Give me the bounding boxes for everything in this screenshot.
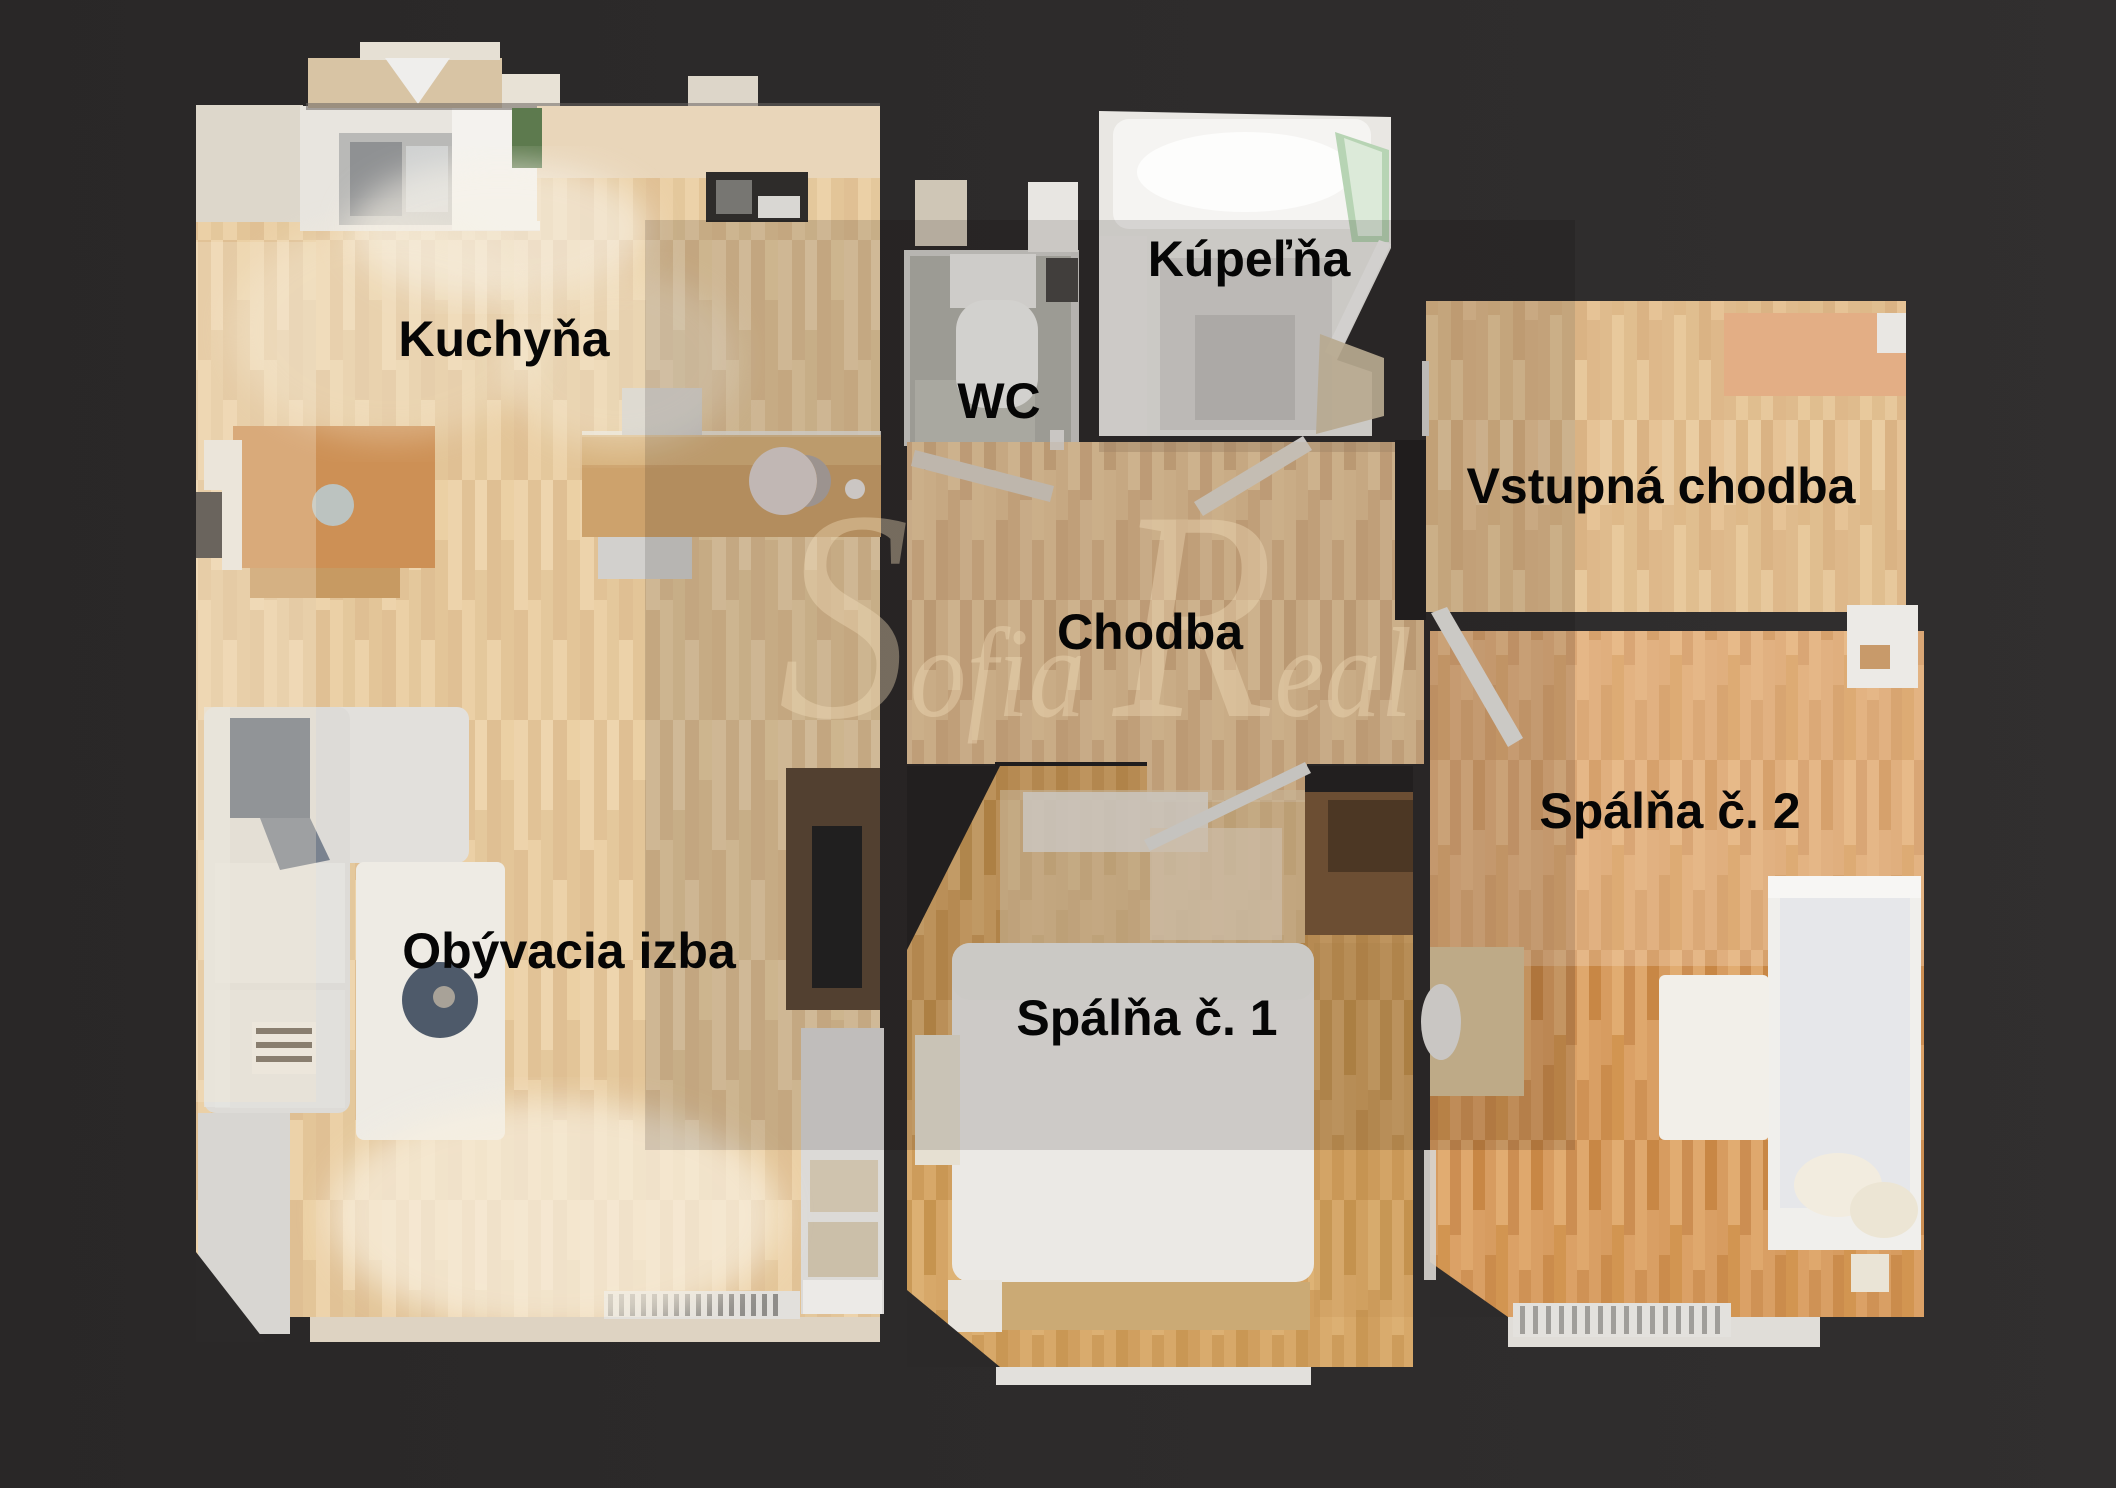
svg-text:Spálňa č. 1: Spálňa č. 1	[1016, 990, 1277, 1046]
svg-text:WC: WC	[957, 373, 1040, 429]
svg-text:Spálňa č. 2: Spálňa č. 2	[1539, 783, 1800, 839]
svg-text:Obývacia izba: Obývacia izba	[402, 923, 737, 979]
svg-text:Vstupná chodba: Vstupná chodba	[1467, 458, 1857, 514]
svg-text:Chodba: Chodba	[1057, 604, 1244, 660]
svg-text:Kúpeľňa: Kúpeľňa	[1148, 231, 1352, 287]
svg-text:Kuchyňa: Kuchyňa	[398, 311, 610, 367]
